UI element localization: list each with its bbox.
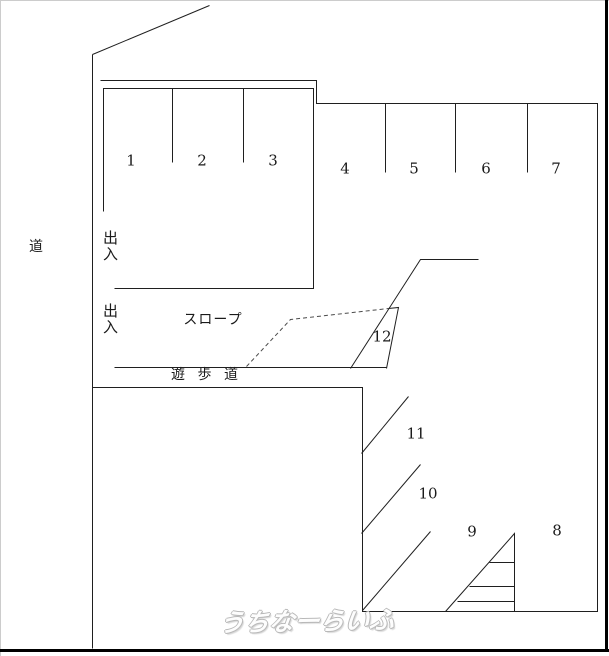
space-label-8: 8	[552, 524, 562, 539]
entrance-label-top: 出入	[103, 230, 120, 262]
slope-label: スロープ	[183, 313, 242, 327]
space-label-6: 6	[481, 162, 491, 177]
entrance-label-bottom: 出入	[103, 303, 120, 335]
space-label-1: 1	[126, 154, 136, 169]
frame-left-line	[0, 0, 1, 656]
slope-edge-line	[351, 260, 479, 369]
space-label-11: 11	[406, 427, 425, 442]
diagram-lines	[0, 0, 609, 656]
spaces-1-3-box	[104, 89, 314, 289]
frame-bottom-line	[0, 649, 609, 652]
top-diagonal-boundary	[93, 6, 210, 55]
divider-space-9	[363, 532, 431, 611]
stairs	[446, 534, 515, 612]
space-label-12: 12	[372, 330, 391, 345]
space-label-3: 3	[268, 154, 278, 169]
space-label-5: 5	[409, 162, 419, 177]
divider-space-10	[362, 465, 421, 534]
site-watermark: うちなーらいふ	[216, 600, 397, 639]
slope-dashed-line	[247, 309, 389, 367]
space-label-9: 9	[467, 525, 477, 540]
space-label-2: 2	[197, 154, 207, 169]
frame-right-line	[605, 0, 608, 652]
space-label-10: 10	[418, 487, 437, 502]
space-label-4: 4	[340, 162, 350, 177]
walkway-label: 遊歩道	[171, 368, 251, 382]
space-label-7: 7	[551, 162, 561, 177]
parking-diagram: 道 出入 出入 スロープ 遊歩道 1 2 3 4 5 6 7 8 9 10 11…	[0, 0, 609, 656]
frame-top-line	[0, 0, 609, 1]
road-label: 道	[29, 240, 43, 254]
divider-space-11	[362, 397, 409, 454]
